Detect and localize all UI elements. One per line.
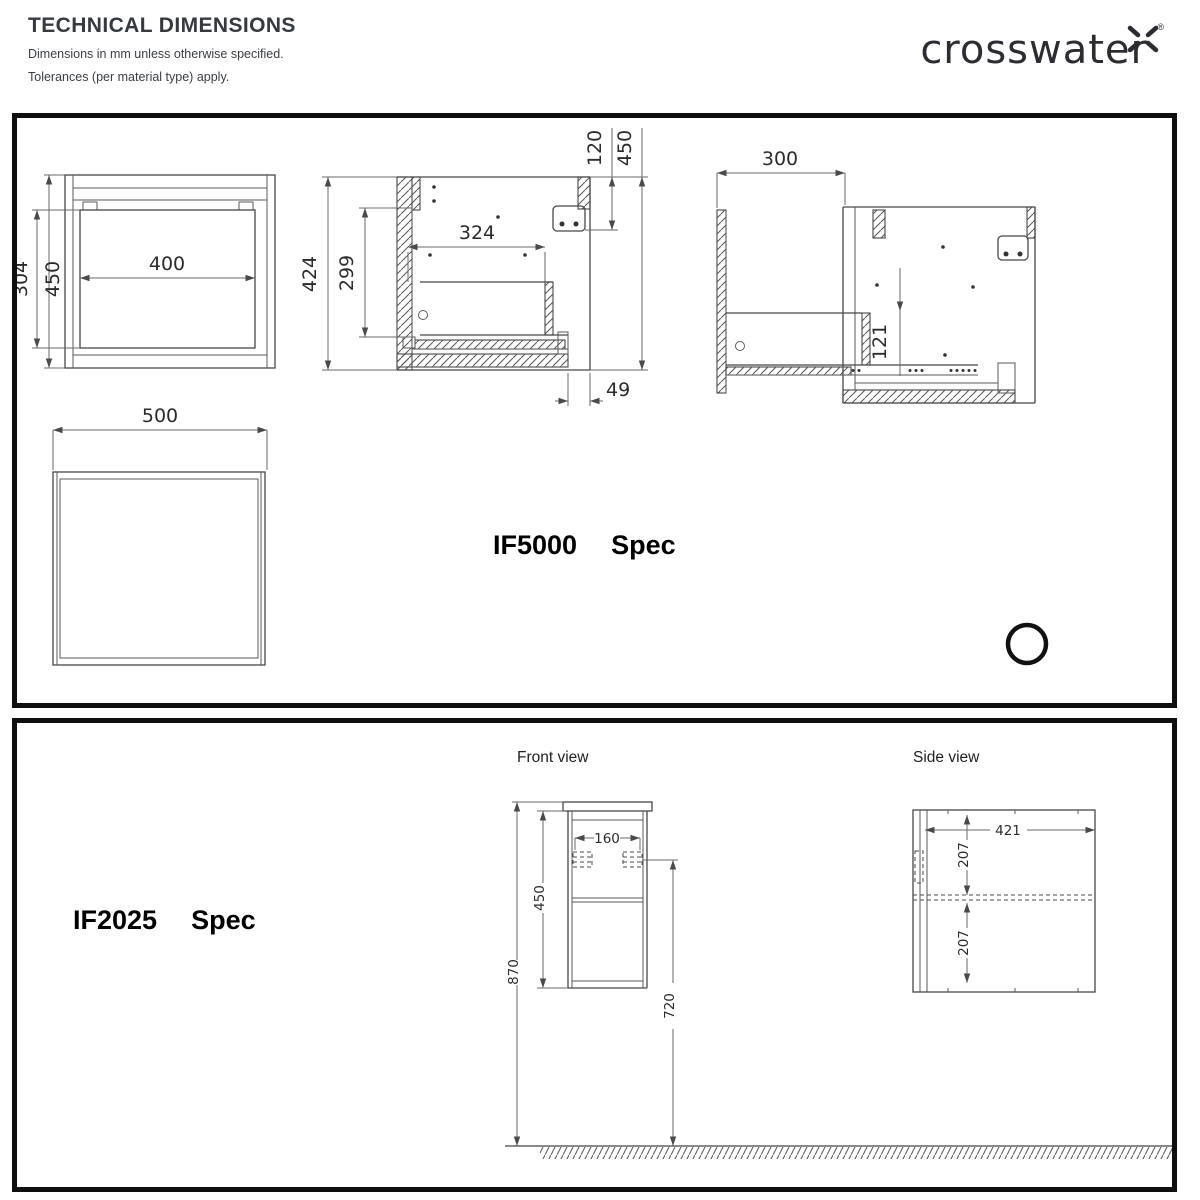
dim-label-cabinet-height: 450 (532, 885, 548, 911)
if2025-spec-word: Spec (191, 905, 256, 936)
if5000-open-drawer-drawing: 300 (717, 148, 1035, 403)
dim-label-top-width: 500 (142, 405, 178, 427)
panel-if2025: 160 450 870 720 (12, 718, 1177, 1192)
side-view-label: Side view (913, 749, 979, 767)
dim-label-drawer-height: 299 (336, 255, 358, 291)
if5000-model: IF5000 (493, 530, 577, 561)
brand-x-icon (1126, 24, 1160, 56)
dim-label-drop: 121 (869, 324, 891, 360)
page-header: TECHNICAL DIMENSIONS Dimensions in mm un… (28, 14, 296, 84)
if2025-spec-title: IF2025 Spec (73, 905, 256, 936)
if5000-front-view-drawing: 400 304 450 (17, 175, 275, 368)
front-view-label: Front view (517, 749, 589, 767)
if5000-spec-word: Spec (611, 530, 676, 561)
dim-label-bracket-spacing: 160 (594, 831, 620, 847)
if2025-front-view-drawing: 160 450 870 720 (506, 802, 678, 1146)
dim-label-front-opening-height: 304 (17, 261, 32, 297)
dim-label-front-width: 400 (149, 253, 185, 275)
dim-label-bracket-to-floor: 720 (662, 993, 678, 1019)
dim-label-drawer-width: 324 (459, 222, 495, 244)
registered-mark: ® (1157, 22, 1164, 32)
if5000-spec-title: IF5000 Spec (493, 530, 676, 561)
dim-label-front-height: 450 (42, 261, 64, 297)
dim-label-upper-section: 207 (956, 842, 972, 868)
dim-label-top-gap: 120 (584, 130, 606, 166)
circle-mark (1008, 625, 1046, 663)
spec-sheet: TECHNICAL DIMENSIONS Dimensions in mm un… (0, 0, 1200, 1200)
panel-if5000: 400 304 450 (12, 113, 1177, 708)
dim-label-lower-section: 207 (956, 930, 972, 956)
dim-label-section-overall-height: 450 (614, 130, 636, 166)
if5000-top-view-drawing: 500 (53, 405, 267, 665)
dim-label-section-height: 424 (299, 256, 321, 292)
subtitle-units: Dimensions in mm unless otherwise specif… (28, 47, 296, 61)
page-title: TECHNICAL DIMENSIONS (28, 14, 296, 38)
ground-line (505, 1146, 1172, 1159)
if5000-drawings: 400 304 450 (17, 118, 1172, 703)
dim-label-depth: 421 (995, 823, 1021, 839)
if2025-drawings: 160 450 870 720 (17, 723, 1172, 1187)
if5000-section-view-drawing: 424 299 324 120 (299, 128, 648, 406)
subtitle-tolerances: Tolerances (per material type) apply. (28, 70, 296, 84)
if2025-side-view-drawing: 421 207 207 (913, 810, 1095, 992)
dim-label-extension: 300 (762, 148, 798, 170)
dim-label-front-offset: 49 (606, 379, 630, 401)
brand-logo: crosswater (920, 30, 1148, 70)
dim-label-total-height: 870 (506, 959, 522, 985)
if2025-model: IF2025 (73, 905, 157, 936)
